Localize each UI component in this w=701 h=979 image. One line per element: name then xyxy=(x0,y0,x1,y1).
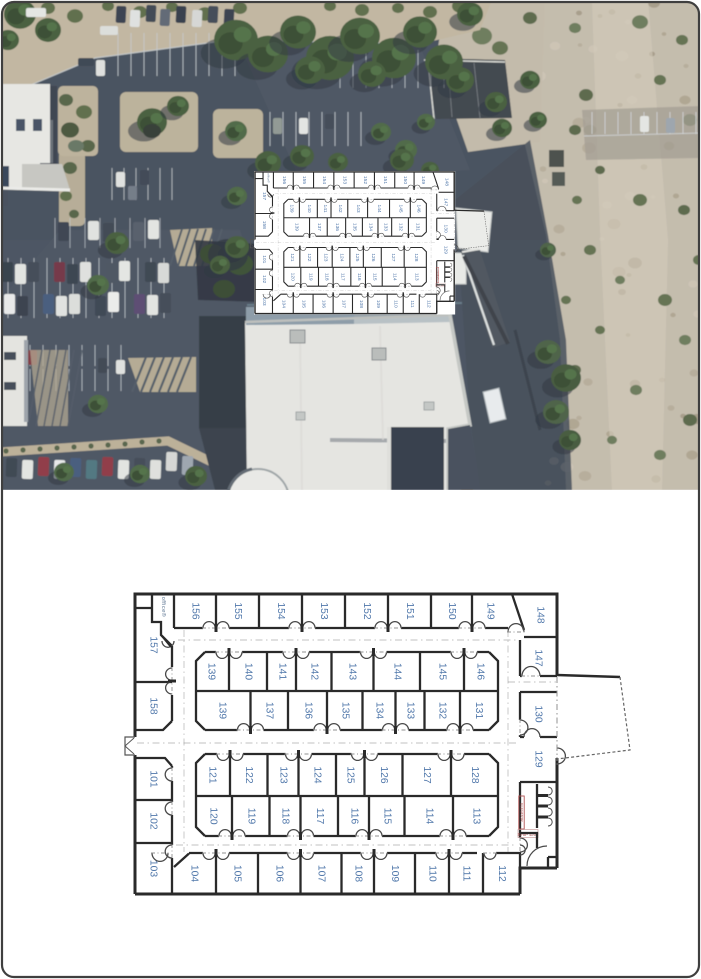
svg-text:144: 144 xyxy=(392,663,403,680)
svg-text:141: 141 xyxy=(277,663,288,680)
svg-text:105: 105 xyxy=(232,865,243,882)
svg-text:117: 117 xyxy=(314,808,325,825)
svg-text:115: 115 xyxy=(382,808,393,825)
svg-text:156: 156 xyxy=(190,602,201,619)
svg-text:119: 119 xyxy=(246,808,257,825)
svg-text:109: 109 xyxy=(389,865,400,882)
svg-text:153: 153 xyxy=(318,602,329,619)
svg-text:121: 121 xyxy=(207,766,218,783)
svg-text:131: 131 xyxy=(473,702,484,719)
svg-text:129: 129 xyxy=(533,750,544,767)
svg-text:150: 150 xyxy=(446,602,457,619)
svg-text:152: 152 xyxy=(361,602,372,619)
svg-text:140: 140 xyxy=(243,663,254,680)
svg-text:116: 116 xyxy=(349,808,360,825)
svg-text:154: 154 xyxy=(275,602,286,619)
svg-text:133: 133 xyxy=(405,702,416,719)
svg-text:125: 125 xyxy=(345,766,356,783)
svg-text:127: 127 xyxy=(421,766,432,783)
svg-text:114: 114 xyxy=(424,808,435,825)
svg-text:110: 110 xyxy=(427,865,438,882)
svg-text:149: 149 xyxy=(485,602,496,619)
svg-text:108: 108 xyxy=(353,865,364,882)
svg-text:146: 146 xyxy=(475,663,486,680)
svg-text:113: 113 xyxy=(471,808,482,825)
svg-text:134: 134 xyxy=(374,702,385,719)
svg-text:136: 136 xyxy=(303,702,314,719)
svg-text:102: 102 xyxy=(148,812,159,829)
svg-text:157: 157 xyxy=(148,636,159,653)
svg-text:139: 139 xyxy=(206,663,217,680)
svg-text:132: 132 xyxy=(437,702,448,719)
svg-text:112: 112 xyxy=(496,865,507,882)
svg-text:ELEVATOR: ELEVATOR xyxy=(520,803,524,822)
svg-text:155: 155 xyxy=(232,602,243,619)
svg-text:145: 145 xyxy=(437,663,448,680)
svg-text:office®: office® xyxy=(160,597,167,618)
svg-text:106: 106 xyxy=(274,865,285,882)
svg-text:120: 120 xyxy=(208,807,219,824)
svg-text:158: 158 xyxy=(148,697,159,714)
svg-text:111: 111 xyxy=(461,866,472,882)
svg-text:107: 107 xyxy=(316,865,327,882)
svg-text:137: 137 xyxy=(264,702,275,719)
svg-text:139: 139 xyxy=(217,702,228,719)
svg-text:147: 147 xyxy=(533,649,544,666)
svg-text:124: 124 xyxy=(312,766,323,783)
svg-text:143: 143 xyxy=(347,663,358,680)
svg-text:128: 128 xyxy=(469,766,480,783)
svg-text:122: 122 xyxy=(243,766,254,783)
svg-text:151: 151 xyxy=(404,602,415,619)
svg-text:130: 130 xyxy=(533,705,544,722)
svg-text:103: 103 xyxy=(148,860,159,877)
svg-text:118: 118 xyxy=(280,808,291,825)
svg-text:148: 148 xyxy=(535,606,546,623)
svg-text:126: 126 xyxy=(378,766,389,783)
svg-text:142: 142 xyxy=(309,663,320,680)
svg-text:104: 104 xyxy=(189,865,200,882)
svg-text:135: 135 xyxy=(340,702,351,719)
svg-text:101: 101 xyxy=(148,770,159,787)
svg-text:123: 123 xyxy=(278,766,289,783)
